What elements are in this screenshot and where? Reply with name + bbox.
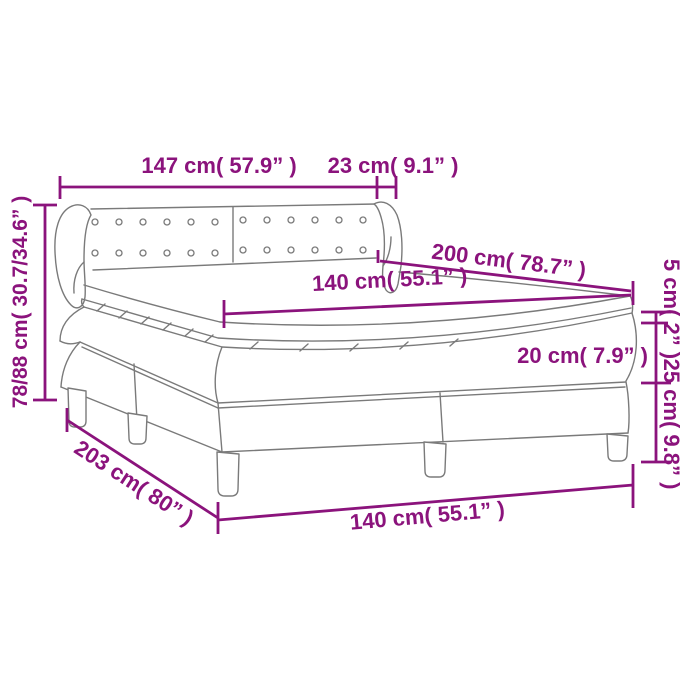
mattress-left-cap [60,307,84,341]
button-icon [140,219,146,225]
base-foot-seam [440,393,443,442]
topper-left-top-edge [84,285,220,322]
dim-headboard-width-line [60,176,396,199]
dimension-annotations: 147 cm( 57.9” ) 23 cm( 9.1” ) 78/88 cm( … [9,153,684,535]
dimension-diagram: 147 cm( 57.9” ) 23 cm( 9.1” ) 78/88 cm( … [0,0,700,700]
button-icon [164,250,170,256]
dim-topper-thickness-label: 5 cm( 2” ) [659,259,684,359]
topper-piping-top [82,299,631,341]
button-icon [312,217,318,223]
base-left-cap [61,342,80,387]
dim-mattress-width-label: 140 cm( 55.1” ) [311,263,467,296]
dim-mattress-thickness-label: 20 cm( 7.9” ) [517,343,648,368]
dim-headboard-width-label: 147 cm( 57.9” ) [141,153,296,178]
button-icon [188,219,194,225]
button-icon [240,217,246,223]
button-icon [336,247,342,253]
button-icon [360,247,366,253]
headboard-bottom-edge [93,258,376,270]
base-corner-seam [218,403,222,452]
button-icon [312,247,318,253]
button-icon [92,219,98,225]
button-icon [212,219,218,225]
dim-headboard-depth-label: 23 cm( 9.1” ) [328,153,459,178]
button-icon [188,250,194,256]
button-icon [264,247,270,253]
bed-leg [128,413,147,444]
headboard-left-wing [55,205,91,308]
button-icon [240,247,246,253]
base-right-cap [626,382,629,433]
bed-dimension-drawing: 147 cm( 57.9” ) 23 cm( 9.1” ) 78/88 cm( … [0,0,700,700]
mattress-left-bottom [60,341,80,344]
button-icon [264,217,270,223]
base-foot-top-edge [218,382,626,403]
button-icon [92,250,98,256]
button-icon [360,217,366,223]
dim-frame-width-label: 140 cm( 55.1” ) [349,496,506,534]
bed-leg [607,434,628,461]
dim-frame-length-label: 203 cm( 80” ) [70,435,198,531]
dim-height-label: 78/88 cm( 30.7/34.6” ) [9,196,32,408]
base-left-top-edge [80,342,218,403]
base-left-top-piping [82,347,218,408]
base-foot-top-piping [218,387,625,408]
bed-leg [424,442,446,477]
button-icon [116,219,122,225]
mattress-front-corner [215,347,222,403]
dim-base-height-label: 25 cm( 9.8” ) [659,359,684,490]
button-icon [140,250,146,256]
button-icon [212,250,218,256]
button-icon [288,247,294,253]
button-icon [164,219,170,225]
dim-height-line [33,205,57,400]
bed-leg [217,452,239,496]
button-icon [288,217,294,223]
button-icon [116,250,122,256]
base-left-seam [134,364,137,421]
headboard-buttons [92,217,366,256]
button-icon [336,217,342,223]
